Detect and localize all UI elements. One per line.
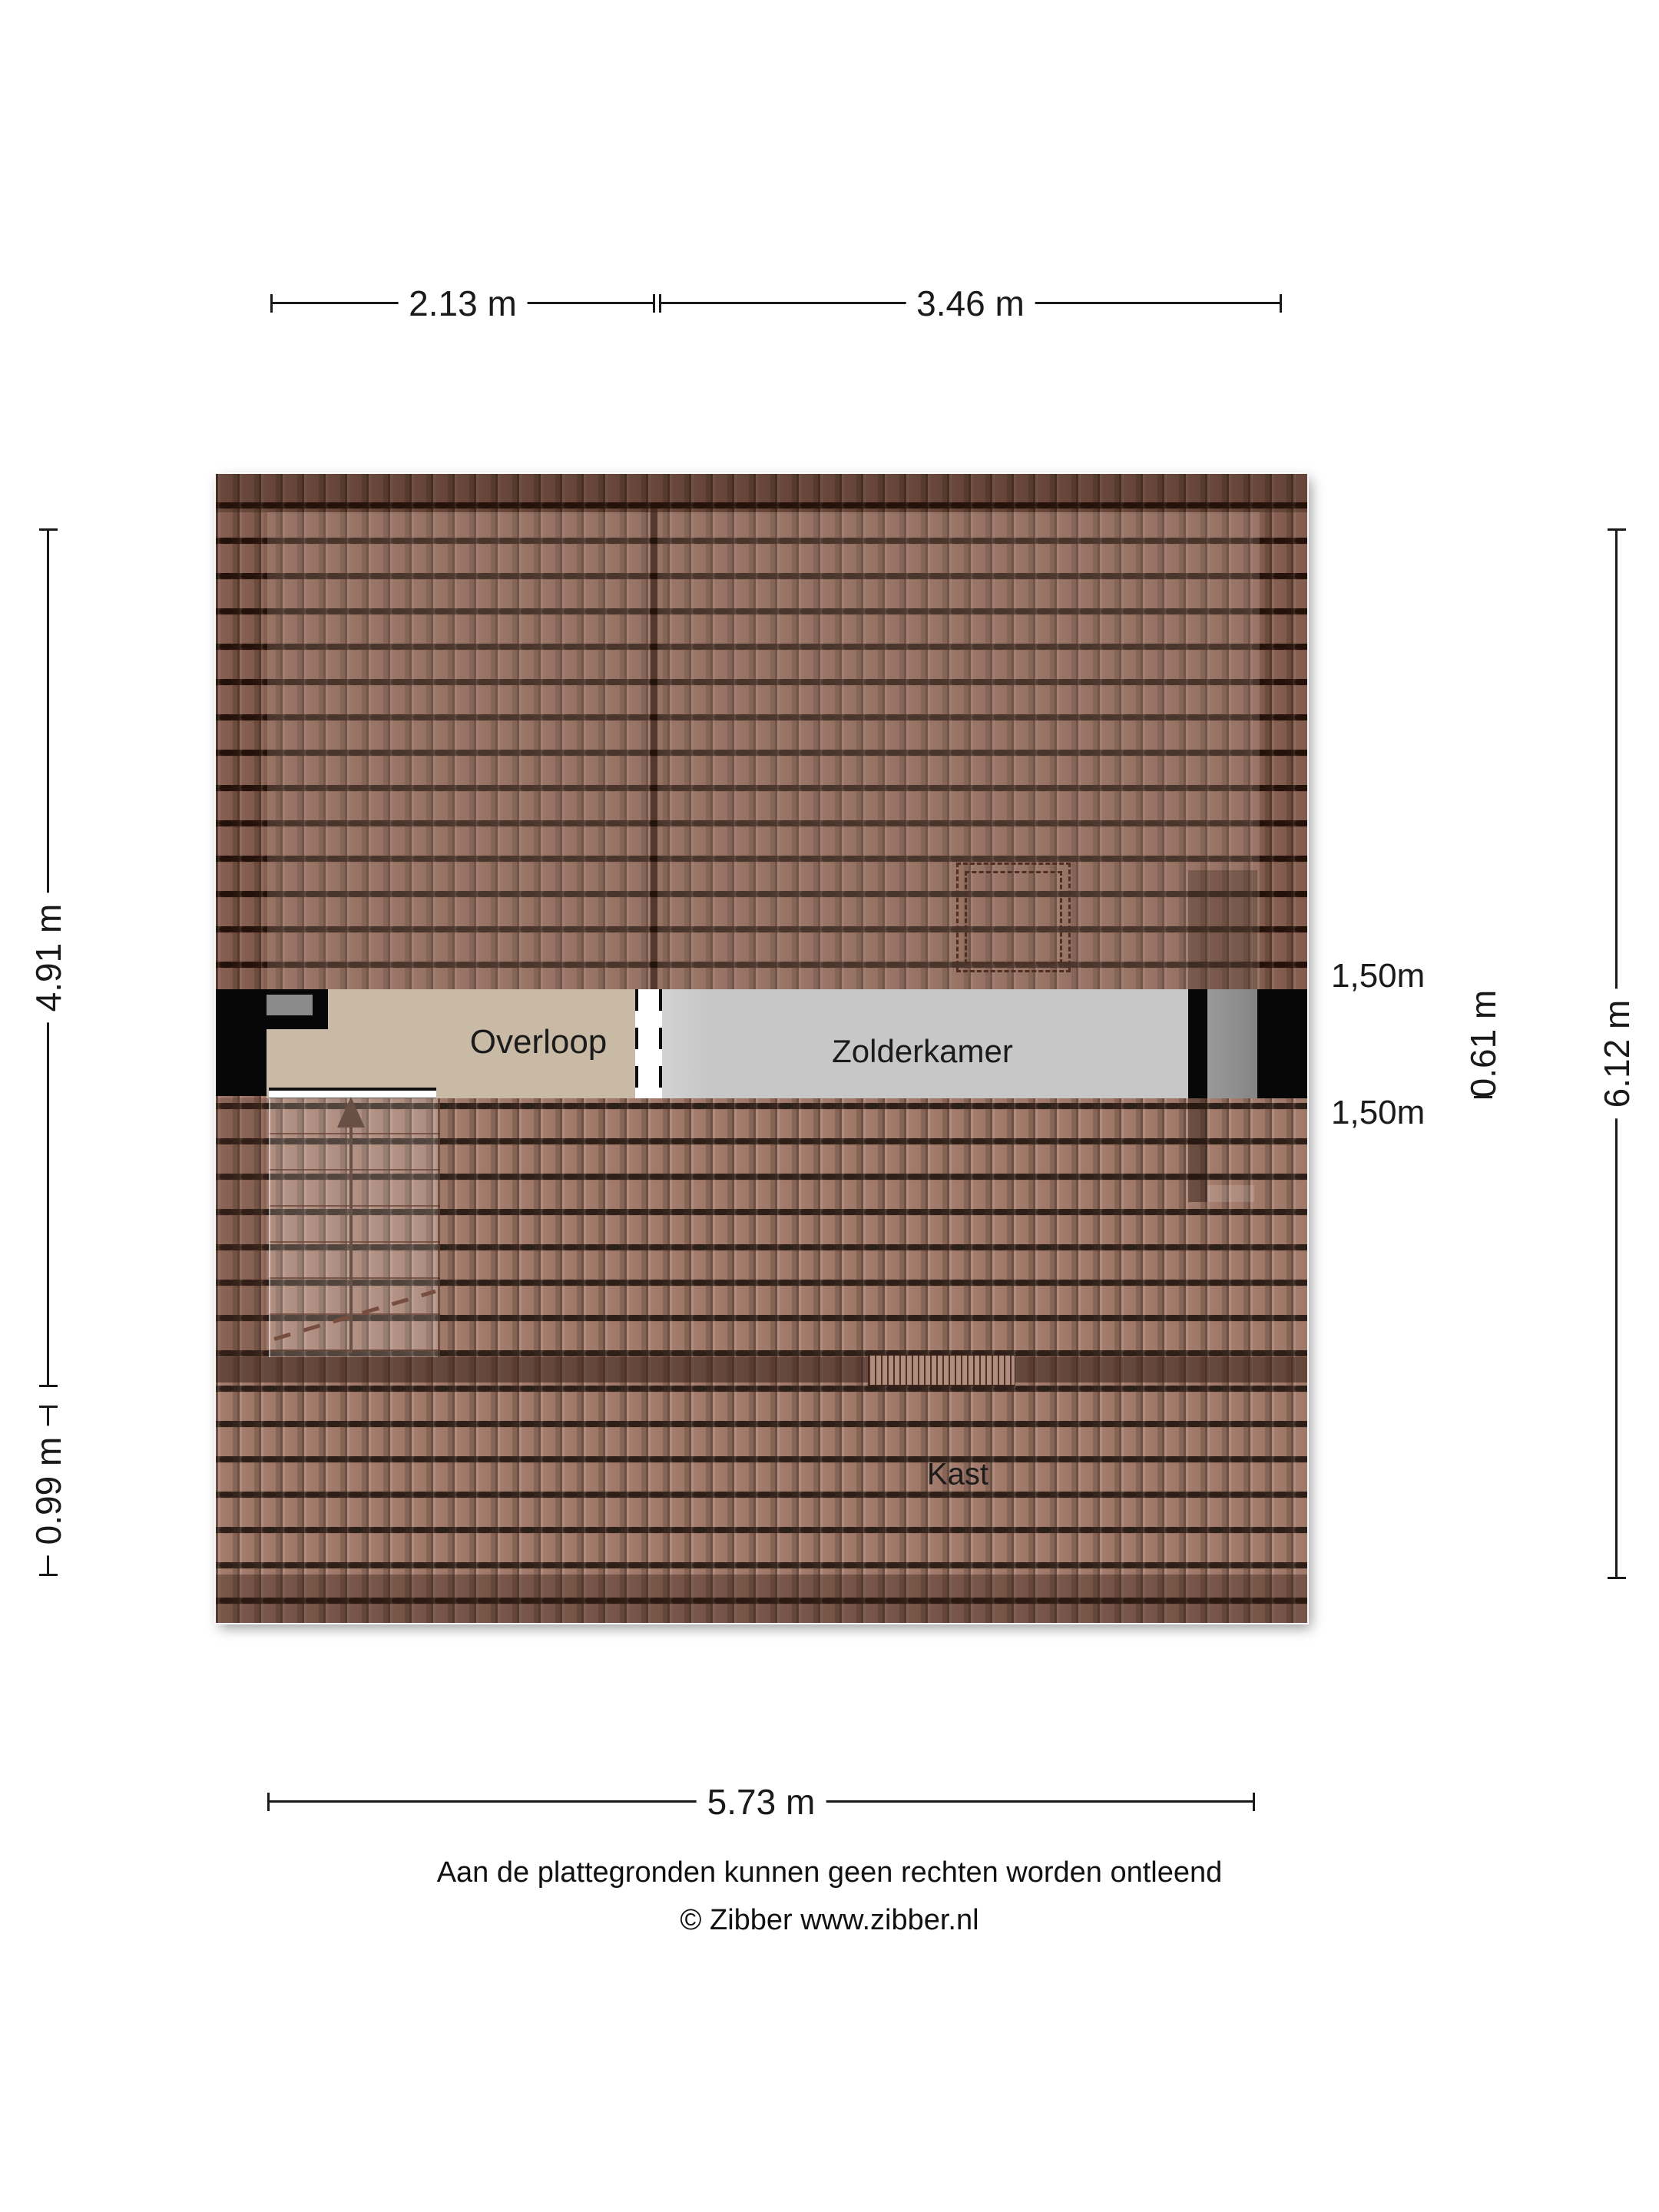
chimney-block-right	[1207, 989, 1257, 1098]
label-zolderkamer: Zolderkamer	[832, 1033, 1013, 1070]
door-dashed-line-left	[635, 989, 638, 1098]
wall-right-outer	[1257, 989, 1307, 1098]
door-opening	[635, 989, 662, 1098]
roof-hatch-strip	[868, 1355, 1015, 1386]
footer: Aan de plattegronden kunnen geen rechten…	[0, 1849, 1659, 1944]
height-line-bottom-label: 1,50m	[1331, 1094, 1425, 1132]
stair-arrow-head-icon	[337, 1097, 365, 1128]
dim-left-lower: 0.99 m	[47, 1406, 49, 1576]
dim-left-lower-label: 0.99 m	[26, 1426, 71, 1556]
floorplan-canvas: Overloop Zolderkamer Kast	[216, 474, 1307, 1623]
label-overloop: Overloop	[470, 1023, 608, 1061]
stairs	[269, 1098, 440, 1357]
chimney-block-left	[267, 995, 313, 1015]
footer-copyright: © Zibber www.zibber.nl	[0, 1897, 1659, 1945]
dim-right-outer: 6.12 m	[1615, 528, 1618, 1579]
eaves-band	[216, 1357, 1307, 1382]
skylight-inner-outline	[965, 871, 1062, 964]
dim-left-upper: 4.91 m	[47, 528, 49, 1387]
dim-top-right-label: 3.46 m	[906, 281, 1035, 326]
floorplan-page: { "floorplan": { "rooms": { "overloop": …	[0, 0, 1659, 2212]
dim-top-left-label: 2.13 m	[398, 281, 528, 326]
dim-right-inner: 0.61 m	[1482, 989, 1484, 1098]
dim-top-left: 2.13 m	[270, 302, 655, 304]
wall-right-inner	[1188, 989, 1207, 1098]
dim-top-right: 3.46 m	[659, 302, 1282, 304]
dim-bottom-label: 5.73 m	[697, 1780, 826, 1824]
footer-disclaimer: Aan de plattegronden kunnen geen rechten…	[0, 1849, 1659, 1897]
dim-right-inner-label: 0.61 m	[1461, 979, 1505, 1109]
dim-bottom: 5.73 m	[267, 1800, 1255, 1803]
dim-right-outer-label: 6.12 m	[1594, 989, 1639, 1119]
stair-arrow-stem	[349, 1126, 353, 1353]
skylight-dashed-outline	[956, 863, 1071, 972]
height-line-top-label: 1,50m	[1331, 957, 1425, 995]
label-kast: Kast	[927, 1458, 988, 1492]
dim-left-upper-label: 4.91 m	[26, 893, 71, 1023]
